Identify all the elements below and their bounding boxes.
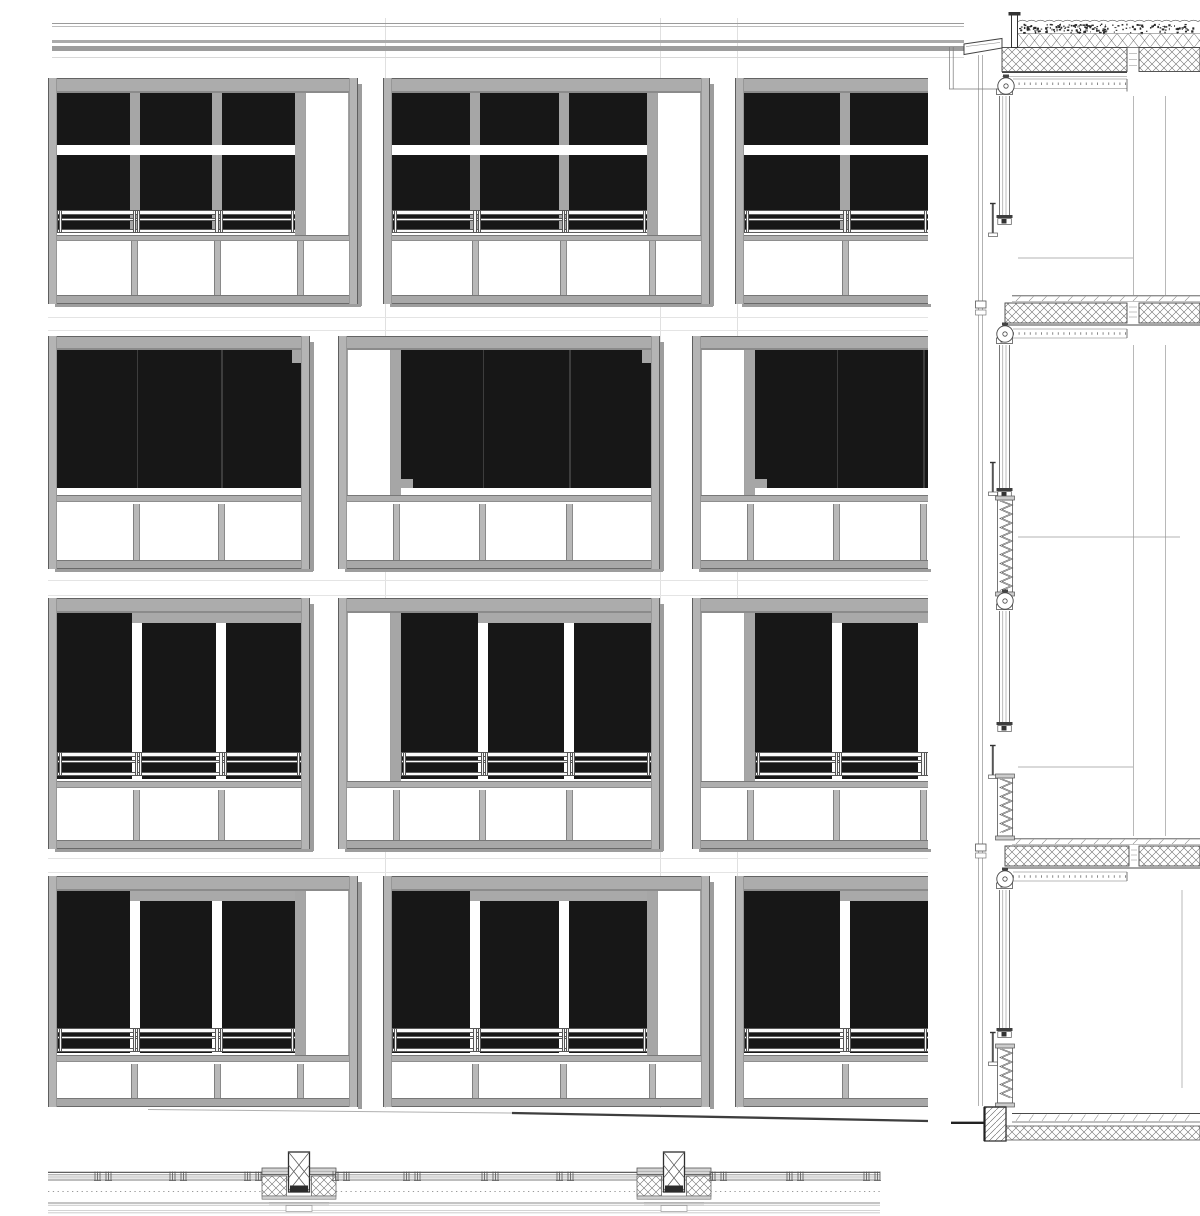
railing xyxy=(753,752,928,776)
railing-post xyxy=(481,752,484,776)
railing-post xyxy=(297,752,300,776)
side-pane xyxy=(305,891,349,1055)
blind-box-sliver xyxy=(212,891,295,901)
railing-bar xyxy=(390,210,649,215)
transom-band xyxy=(744,145,928,155)
railing-bar xyxy=(390,1028,649,1033)
unit-shadow-right xyxy=(310,604,314,851)
lower-mullion xyxy=(560,1064,567,1098)
floor-line xyxy=(48,872,928,873)
railing-post xyxy=(566,1028,569,1052)
window-unit-row-4-u3 xyxy=(735,876,928,1107)
transom-band xyxy=(392,145,647,155)
lower-mullion xyxy=(214,1064,221,1098)
floor-line xyxy=(48,330,928,331)
lower-mullion xyxy=(842,1064,849,1098)
blind-box-sliver xyxy=(559,891,647,901)
railing-bar xyxy=(55,218,297,222)
roof-edge-line xyxy=(52,26,964,27)
frame-top-band xyxy=(692,598,928,613)
blind-seam xyxy=(837,350,838,488)
blind-notch xyxy=(642,350,651,363)
side-mullion xyxy=(647,93,657,235)
railing-post xyxy=(647,752,650,776)
railing-post xyxy=(924,1028,927,1052)
railing-bar xyxy=(742,218,928,222)
railing-bar xyxy=(390,1048,649,1052)
sill-bar xyxy=(744,1055,928,1062)
lower-mullion xyxy=(214,241,221,295)
frame-top-band xyxy=(338,598,660,613)
blind-box-sliver xyxy=(840,891,928,901)
railing-bar xyxy=(55,1048,297,1052)
roof-edge-line xyxy=(52,57,964,58)
railing-post xyxy=(848,210,851,233)
frame-right xyxy=(349,876,358,1107)
railing-post xyxy=(562,1028,565,1052)
blind-box-sliver xyxy=(918,613,928,623)
floor-line xyxy=(48,317,928,318)
frame-top-band xyxy=(383,78,710,93)
window-unit-row-3-u2 xyxy=(338,598,660,849)
frame-top-band xyxy=(48,598,310,613)
unit-shadow-bottom xyxy=(345,569,663,572)
side-mullion xyxy=(745,613,755,781)
lower-mullion xyxy=(560,241,567,295)
roof-edge-line xyxy=(52,23,964,24)
railing-bar xyxy=(55,772,303,776)
frame-left xyxy=(338,598,347,849)
railing-post xyxy=(643,1028,646,1052)
railing-bar xyxy=(399,752,653,757)
railing-post xyxy=(843,210,846,233)
railing-post xyxy=(394,1028,397,1052)
railing-post xyxy=(59,210,62,233)
roof-edge-line xyxy=(52,40,964,43)
frame-bottom-band xyxy=(338,840,660,849)
lower-mullion xyxy=(131,1064,138,1098)
blind-notch xyxy=(401,479,413,488)
side-mullion xyxy=(745,350,755,495)
lower-mullion xyxy=(131,241,138,295)
unit-shadow-right xyxy=(358,882,362,1109)
unit-shadow-right xyxy=(710,882,714,1109)
lower-mullion xyxy=(747,790,754,840)
unit-shadow-right xyxy=(660,342,664,571)
side-mullion xyxy=(295,891,305,1055)
blind-box-sliver xyxy=(132,613,217,623)
roller-blind-closed xyxy=(57,350,301,488)
railing-post xyxy=(848,1028,851,1052)
railing-bar xyxy=(55,229,297,233)
blind-box-sliver xyxy=(478,613,565,623)
unit-shadow-right xyxy=(660,604,664,851)
frame-right xyxy=(701,876,710,1107)
frame-bottom-band xyxy=(48,1098,358,1107)
lower-band xyxy=(744,1064,928,1098)
blind-notch xyxy=(292,350,301,363)
railing-post xyxy=(757,752,760,776)
railing-post xyxy=(291,1028,294,1052)
railing-post xyxy=(572,752,575,776)
window-unit-row-2-u1 xyxy=(48,336,310,569)
blind-box-sliver xyxy=(470,891,558,901)
lower-mullion xyxy=(842,241,849,295)
railing-post xyxy=(478,1028,481,1052)
railing-bar xyxy=(390,218,649,222)
side-mullion xyxy=(391,350,401,495)
railing-post xyxy=(473,210,476,233)
lower-mullion xyxy=(472,1064,479,1098)
frame-left xyxy=(48,336,57,569)
window-unit-row-4-u2 xyxy=(383,876,710,1107)
frame-bottom-band xyxy=(692,840,928,849)
lower-band xyxy=(57,241,349,295)
blind-seam xyxy=(137,350,138,488)
unit-shadow-bottom xyxy=(55,849,313,852)
railing-post xyxy=(220,210,223,233)
blind-seam xyxy=(221,350,222,488)
railing-post xyxy=(746,1028,749,1052)
blind-seam xyxy=(923,350,924,488)
frame-bottom-band xyxy=(48,840,310,849)
railing-bar xyxy=(55,752,303,757)
side-pane xyxy=(657,891,701,1055)
railing-bar xyxy=(742,229,928,233)
frame-bottom-band xyxy=(383,295,710,304)
railing-bar xyxy=(55,1028,297,1033)
railing-bar xyxy=(742,210,928,215)
railing-post xyxy=(924,210,927,233)
railing-post xyxy=(224,752,227,776)
unit-shadow-right xyxy=(310,342,314,571)
railing-post xyxy=(403,752,406,776)
frame-right xyxy=(349,78,358,304)
railing-post xyxy=(215,210,218,233)
railing-post xyxy=(473,1028,476,1052)
railing-bar xyxy=(742,1036,928,1040)
frame-bottom-band xyxy=(383,1098,710,1107)
railing-post xyxy=(220,1028,223,1052)
railing-post xyxy=(478,210,481,233)
lower-mullion xyxy=(393,504,400,560)
unit-shadow-right xyxy=(710,84,714,306)
lower-mullion xyxy=(566,790,573,840)
lower-mullion xyxy=(479,504,486,560)
railing-bar xyxy=(390,229,649,233)
railing-bar xyxy=(399,772,653,776)
railing-post xyxy=(59,752,62,776)
railing-post xyxy=(924,752,927,776)
railing-post xyxy=(567,752,570,776)
floor-line xyxy=(48,858,928,859)
frame-top-band xyxy=(48,336,310,350)
railing xyxy=(742,210,928,233)
window-unit-row-1-u1 xyxy=(48,78,358,304)
window-unit-row-3-u1 xyxy=(48,598,310,849)
floor-line xyxy=(48,580,928,581)
railing xyxy=(55,210,297,233)
frame-top-band xyxy=(48,876,358,891)
lower-mullion xyxy=(920,790,927,840)
frame-top-band xyxy=(735,876,928,891)
railing-post xyxy=(643,210,646,233)
lower-mullion xyxy=(393,790,400,840)
unit-shadow-bottom xyxy=(699,849,931,852)
lower-mullion xyxy=(649,1064,656,1098)
frame-left xyxy=(692,336,701,569)
unit-shadow-right xyxy=(358,84,362,306)
railing-post xyxy=(133,1028,136,1052)
frame-top-band xyxy=(338,336,660,350)
railing-post xyxy=(219,752,222,776)
lower-mullion xyxy=(218,504,225,560)
window-unit-row-3-u3 xyxy=(692,598,928,849)
blind-seam xyxy=(569,350,570,488)
lower-mullion xyxy=(133,504,140,560)
blind-seam xyxy=(483,350,484,488)
railing xyxy=(390,1028,649,1052)
lower-band xyxy=(57,790,301,840)
lower-mullion xyxy=(218,790,225,840)
window-unit-row-1-u3 xyxy=(735,78,928,304)
lower-mullion xyxy=(649,241,656,295)
railing-post xyxy=(139,752,142,776)
railing xyxy=(742,1028,928,1052)
railing-bar xyxy=(399,760,653,764)
architectural-drawing-sheet xyxy=(0,0,1200,1216)
lower-mullion xyxy=(479,790,486,840)
railing-bar xyxy=(742,1048,928,1052)
frame-left xyxy=(383,78,392,304)
railing-bar xyxy=(55,1036,297,1040)
side-pane xyxy=(305,93,349,235)
facade-elevation-panel xyxy=(0,0,1200,1216)
blind-box-sliver xyxy=(564,613,651,623)
railing-post xyxy=(135,752,138,776)
unit-shadow-bottom xyxy=(55,569,313,572)
frame-left xyxy=(692,598,701,849)
frame-top-band xyxy=(48,78,358,93)
railing-bar xyxy=(55,760,303,764)
frame-right xyxy=(651,598,660,849)
floor-line xyxy=(48,595,928,596)
sill-bar xyxy=(347,781,651,788)
railing-bar xyxy=(742,1028,928,1033)
lower-mullion xyxy=(566,504,573,560)
window-unit-row-4-u1 xyxy=(48,876,358,1107)
frame-right xyxy=(651,336,660,569)
lower-mullion xyxy=(747,504,754,560)
railing xyxy=(55,752,303,776)
unit-shadow-bottom xyxy=(345,849,663,852)
frame-top-band xyxy=(735,78,928,93)
frame-left xyxy=(338,336,347,569)
frame-bottom-band xyxy=(735,295,928,304)
lower-mullion xyxy=(472,241,479,295)
railing-post xyxy=(133,210,136,233)
unit-shadow-bottom xyxy=(390,304,713,307)
railing-post xyxy=(843,1028,846,1052)
lower-band xyxy=(57,504,301,560)
railing-post xyxy=(835,752,838,776)
blind-notch xyxy=(755,479,767,488)
sill-bar xyxy=(347,495,651,503)
railing-bar xyxy=(390,1036,649,1040)
lower-band xyxy=(701,504,928,560)
frame-bottom-band xyxy=(48,295,358,304)
railing-post xyxy=(485,752,488,776)
railing-post xyxy=(566,210,569,233)
railing-post xyxy=(215,1028,218,1052)
lower-band xyxy=(57,1064,349,1098)
sill-bar xyxy=(701,781,928,788)
railing-post xyxy=(137,1028,140,1052)
side-mullion xyxy=(295,93,305,235)
frame-bottom-band xyxy=(692,560,928,569)
frame-right xyxy=(301,336,310,569)
frame-left xyxy=(48,78,57,304)
lower-mullion xyxy=(833,790,840,840)
railing xyxy=(55,1028,297,1052)
blind-box-sliver xyxy=(832,613,919,623)
unit-shadow-bottom xyxy=(742,304,931,307)
railing-post xyxy=(291,210,294,233)
lower-mullion xyxy=(833,504,840,560)
frame-top-band xyxy=(383,876,710,891)
roller-blind-closed xyxy=(401,350,651,488)
frame-top-band xyxy=(692,336,928,350)
railing-bar xyxy=(55,210,297,215)
frame-bottom-band xyxy=(338,560,660,569)
frame-bottom-band xyxy=(48,560,310,569)
sill-bar xyxy=(57,781,301,788)
lower-band xyxy=(744,241,928,295)
side-pane xyxy=(347,350,391,495)
frame-right xyxy=(301,598,310,849)
sill-bar xyxy=(57,1055,349,1062)
unit-shadow-bottom xyxy=(699,569,931,572)
railing-post xyxy=(746,210,749,233)
window-unit-row-2-u2 xyxy=(338,336,660,569)
transom-band xyxy=(57,145,295,155)
railing-post xyxy=(839,752,842,776)
frame-left xyxy=(48,876,57,1107)
unit-shadow-bottom xyxy=(55,304,361,307)
railing-post xyxy=(394,210,397,233)
side-mullion xyxy=(647,891,657,1055)
frame-left xyxy=(48,598,57,849)
side-mullion xyxy=(391,613,401,781)
frame-right xyxy=(701,78,710,304)
railing xyxy=(390,210,649,233)
frame-left xyxy=(383,876,392,1107)
frame-left xyxy=(735,78,744,304)
roller-blind-closed xyxy=(755,350,928,488)
lower-band xyxy=(701,790,928,840)
sill-bar xyxy=(392,1055,701,1062)
frame-left xyxy=(735,876,744,1107)
railing-post xyxy=(137,210,140,233)
sill-bar xyxy=(57,495,301,503)
window-unit-row-1-u2 xyxy=(383,78,710,304)
railing xyxy=(399,752,653,776)
lower-mullion xyxy=(920,504,927,560)
frame-bottom-band xyxy=(735,1098,928,1107)
window-unit-row-2-u3 xyxy=(692,336,928,569)
blind-box-sliver xyxy=(216,613,301,623)
side-pane xyxy=(347,613,391,781)
lower-mullion xyxy=(133,790,140,840)
railing-post xyxy=(59,1028,62,1052)
roof-edge-line xyxy=(52,46,964,52)
side-pane xyxy=(657,93,701,235)
railing-post xyxy=(562,210,565,233)
lower-mullion xyxy=(297,1064,304,1098)
lower-mullion xyxy=(297,241,304,295)
side-pane xyxy=(701,613,745,781)
side-pane xyxy=(701,350,745,495)
sill-bar xyxy=(701,495,928,503)
blind-box-sliver xyxy=(130,891,213,901)
